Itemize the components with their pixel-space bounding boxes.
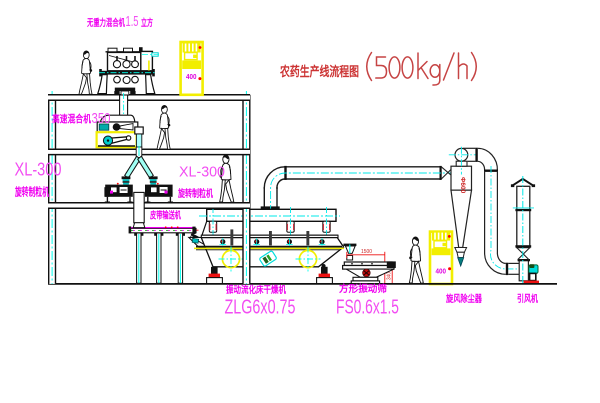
svg-text:无重力混合机: 无重力混合机 — [86, 17, 125, 29]
svg-text:340: 340 — [387, 272, 393, 280]
svg-text:ZLG6x0.75: ZLG6x0.75 — [225, 297, 296, 319]
svg-text:1500: 1500 — [361, 249, 372, 255]
svg-text:XL-300: XL-300 — [15, 159, 62, 180]
svg-text:皮带输送机: 皮带输送机 — [149, 210, 181, 222]
svg-text:400: 400 — [186, 72, 197, 81]
svg-text:400: 400 — [436, 267, 447, 276]
svg-text:立方: 立方 — [141, 17, 153, 29]
svg-text:旋风除尘器: 旋风除尘器 — [445, 293, 482, 305]
svg-text:旋转制粒机: 旋转制粒机 — [177, 187, 213, 200]
svg-text:XL-300: XL-300 — [179, 165, 225, 181]
svg-text:1.5: 1.5 — [126, 14, 139, 30]
svg-text:方形振动筛: 方形振动筛 — [339, 283, 387, 295]
svg-text:高速混合机: 高速混合机 — [52, 113, 91, 126]
svg-text:350: 350 — [92, 110, 111, 127]
svg-text:FS0.6x1.5: FS0.6x1.5 — [336, 297, 399, 319]
svg-text:旋转制粒机: 旋转制粒机 — [14, 185, 49, 199]
svg-text:Φ600: Φ600 — [459, 177, 466, 194]
svg-text:引风机: 引风机 — [517, 293, 538, 305]
svg-text:农药生产线流程图: 农药生产线流程图 — [279, 64, 359, 79]
svg-text:振动流化床干燥机: 振动流化床干燥机 — [226, 284, 286, 296]
